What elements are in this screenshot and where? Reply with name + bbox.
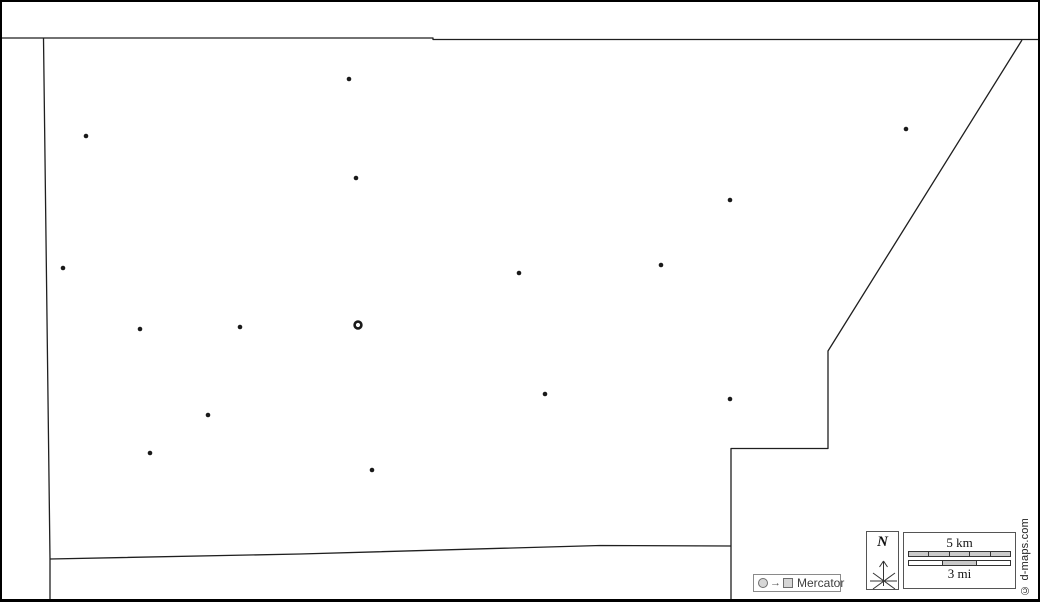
scale-km-bar: [908, 551, 1011, 557]
circle-icon: [758, 578, 768, 588]
town-marker: [904, 127, 909, 132]
town-marker: [370, 468, 375, 473]
square-icon: [783, 578, 793, 588]
scale-segment: [950, 552, 970, 556]
arrow-right-icon: →: [770, 578, 781, 588]
projection-legend: → Mercator: [753, 574, 841, 592]
map-canvas: N 5 km 3 mi → Mercator © d-maps.com: [0, 0, 1040, 602]
north-indicator: N: [866, 531, 899, 590]
copyright-credit: © d-maps.com: [1019, 510, 1031, 596]
north-arrow-icon: [867, 554, 900, 590]
town-marker: [206, 413, 211, 418]
projection-label: Mercator: [797, 576, 844, 590]
town-marker: [728, 198, 733, 203]
town-marker: [61, 266, 66, 271]
scale-segment: [991, 552, 1010, 556]
capital-marker: [355, 322, 362, 329]
scale-bar: 5 km 3 mi: [903, 532, 1016, 589]
town-marker: [84, 134, 89, 139]
scale-segment: [970, 552, 990, 556]
scale-segment: [929, 552, 949, 556]
boundary-line: [44, 38, 51, 600]
boundary-line: [0, 38, 1038, 40]
town-marker: [659, 263, 664, 268]
blank-map: [0, 0, 1040, 602]
town-marker: [138, 327, 143, 332]
scale-km-label: 5 km: [904, 535, 1015, 550]
scale-segment: [909, 552, 929, 556]
scale-segment: [943, 561, 977, 565]
town-marker: [543, 392, 548, 397]
scale-segment: [909, 561, 943, 565]
map-outline: [0, 38, 1038, 600]
north-label: N: [867, 534, 898, 551]
town-marker: [517, 271, 522, 276]
town-marker: [148, 451, 153, 456]
boundary-line: [50, 546, 731, 560]
town-markers: [61, 77, 909, 473]
town-marker: [347, 77, 352, 82]
scale-mi-label: 3 mi: [904, 566, 1015, 581]
town-marker: [728, 397, 733, 402]
town-marker: [238, 325, 243, 330]
scale-segment: [977, 561, 1010, 565]
town-marker: [354, 176, 359, 181]
boundary-line: [731, 40, 1022, 600]
